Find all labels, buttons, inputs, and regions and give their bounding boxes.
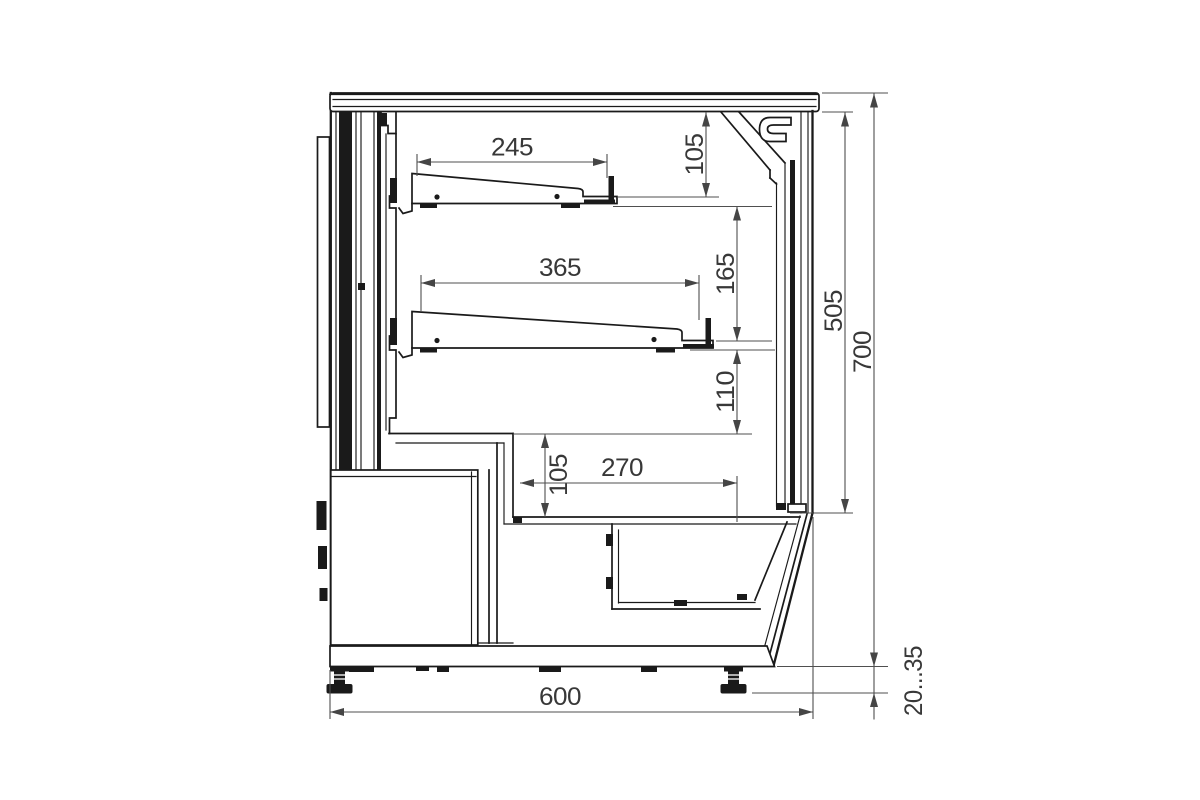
- machine-compartment: [331, 443, 513, 645]
- dim-step-height: 105: [545, 434, 573, 517]
- technical-drawing-page: 245 105 365 165 110 105: [0, 0, 1200, 800]
- dim-shelf-lower-length: 365: [421, 254, 699, 320]
- dim-label-505: 505: [820, 290, 848, 332]
- lamp-bracket-hook: [760, 118, 792, 142]
- canopy: [330, 93, 819, 112]
- dim-label-700: 700: [849, 331, 877, 373]
- dim-canopy-to-shelf: 105: [681, 113, 709, 198]
- dim-label-105-step: 105: [545, 454, 573, 496]
- case-body: [317, 93, 820, 694]
- shelf-bracket-mount-lower: [390, 318, 397, 345]
- dim-leg-adjustment: 20...35: [752, 646, 928, 720]
- dim-label-270: 270: [601, 454, 643, 482]
- wall-clip: [358, 283, 365, 290]
- rear-tab: [317, 501, 327, 530]
- dim-label-165: 165: [712, 253, 740, 295]
- dim-shelf-spacing: 165: [712, 207, 740, 342]
- dim-label-245: 245: [491, 134, 533, 162]
- shelf-front-stop: [706, 318, 712, 345]
- dim-shelf-to-floor: 110: [712, 350, 740, 434]
- shelf-bracket-mount-upper: [390, 178, 397, 203]
- leveling-foot-right: [721, 667, 747, 694]
- shelf-front-stop: [609, 176, 615, 203]
- dim-shelf-upper-length: 245: [417, 134, 607, 179]
- rear-tab: [318, 546, 327, 569]
- dim-glass-height: 505: [790, 112, 853, 513]
- shelf-screw: [434, 338, 439, 343]
- dim-label-110: 110: [712, 371, 740, 413]
- dim-label-600: 600: [539, 683, 581, 711]
- display-case-section-drawing: 245 105 365 165 110 105: [0, 0, 1200, 800]
- shelf-upper: [399, 174, 617, 214]
- rear-outer-panel: [318, 137, 330, 427]
- glass-bottom-frame: [776, 503, 786, 510]
- dim-label-20-35: 20...35: [900, 646, 928, 716]
- front-slant-panel: [762, 513, 813, 664]
- front-glass: [721, 111, 813, 513]
- shelf-screw: [554, 194, 559, 199]
- rear-tab: [320, 588, 328, 601]
- dim-label-365: 365: [539, 254, 581, 282]
- dim-label-105-top: 105: [681, 134, 709, 176]
- shelf-lower: [399, 312, 714, 358]
- shelf-screw: [434, 194, 439, 199]
- shelf-screw: [651, 337, 656, 342]
- storage-well: [606, 522, 787, 609]
